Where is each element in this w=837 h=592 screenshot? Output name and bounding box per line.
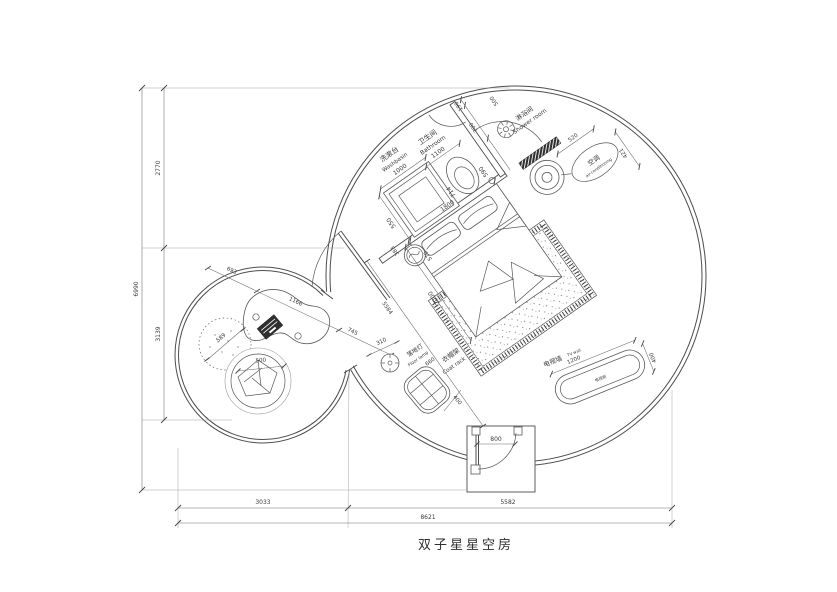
door-post-right [514, 427, 522, 435]
dim-chair: 500 [255, 357, 267, 364]
dim-v-total: 6990 [133, 281, 140, 296]
floor-plan-page: 空调 air-conditioning 洗漱台 Washb [0, 0, 837, 592]
dim-pouf: 589 [215, 332, 227, 344]
door-stop-block [471, 465, 480, 474]
dim-v-top: 2770 [155, 160, 162, 175]
interior-rotated-group: 空调 air-conditioning 洗漱台 Washb [328, 31, 688, 385]
ac-label-bubble: 空调 air-conditioning [558, 135, 625, 195]
armchair: 500 [225, 348, 291, 414]
dim-v-bot: 3139 [155, 326, 162, 341]
dim-basin-depth: 550 [385, 216, 397, 230]
dim-ac-a: 520 [567, 132, 579, 143]
dim-entry-door: 800 [490, 436, 502, 443]
dim-lamp: 310 [376, 337, 389, 347]
dim-h-right: 5582 [500, 499, 515, 506]
tv-wall: 电视柜 1200 电视墙 TV wall 400 [542, 320, 662, 411]
drawing-title: 双子星星空房 [418, 537, 514, 553]
floor-plan-canvas: 空调 air-conditioning 洗漱台 Washb [0, 0, 837, 592]
dim-shower-door: 500 [489, 94, 500, 106]
passage-door [312, 231, 390, 300]
dim-ac-b: 421 [618, 147, 629, 159]
floor-lamp: 310 落地灯 Floor lamp [367, 337, 431, 372]
kidney-table [243, 290, 329, 344]
dim-h-total: 8621 [420, 514, 435, 521]
dim-toilet-width: 590 [478, 165, 490, 179]
dim-h-left: 3033 [255, 499, 270, 506]
door-post-left [472, 427, 480, 435]
dim-diag: 5584 [380, 301, 393, 316]
entrance-vestibule: 800 [467, 426, 535, 492]
small-room-dim-chain: 693 1166 745 [205, 266, 394, 357]
dim-coat-depth: 400 [451, 394, 462, 406]
tvwall-label-cn: 电视墙 [542, 353, 564, 369]
